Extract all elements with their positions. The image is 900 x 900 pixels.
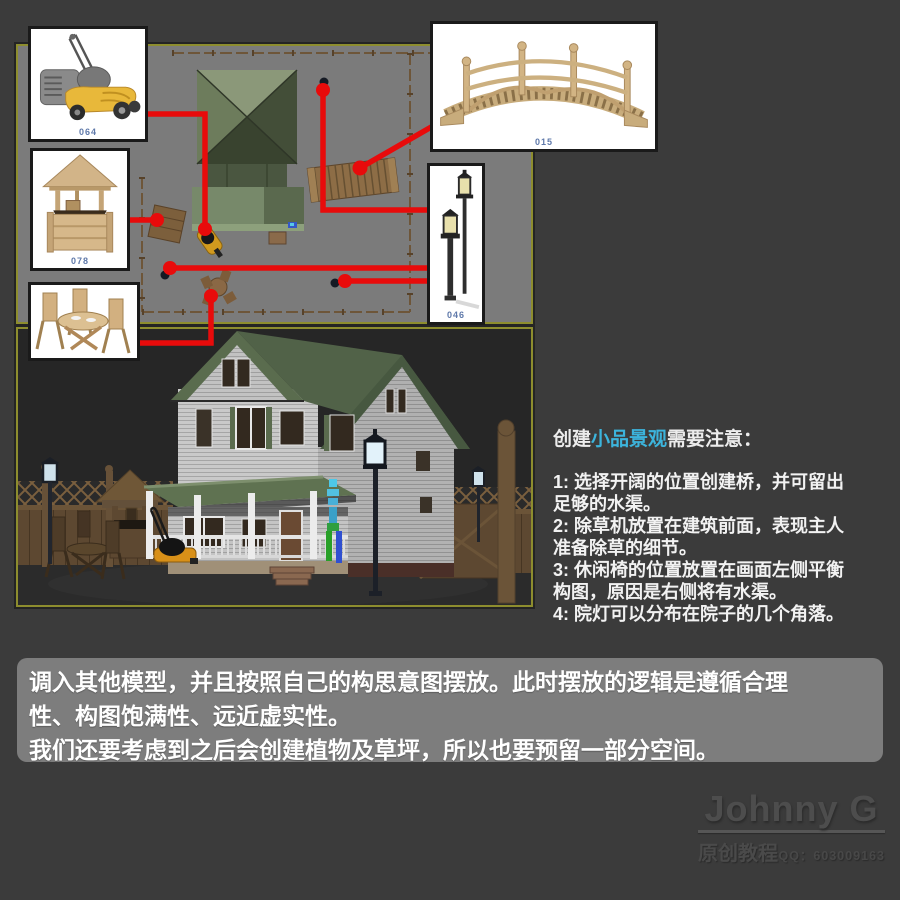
notes-heading-prefix: 创建 [553, 429, 591, 450]
thumbnail-label: 064 [31, 126, 145, 139]
summary-line-1: 调入其他模型，并且按照自己的构思意图摆放。此时摆放的逻辑是遵循合理性、构图饱满性… [29, 665, 821, 733]
house-roof-topview [192, 70, 304, 244]
viewport-render [16, 327, 533, 607]
brick-steps [270, 567, 314, 585]
table-set-topview [200, 269, 237, 307]
thumbnail-garden-lamps: 046 [427, 163, 485, 325]
wooden-bridge-icon [433, 24, 655, 136]
note-item-4: 4: 院灯可以分布在院子的几个角落。 [553, 603, 848, 625]
thumbnail-table-set [28, 282, 140, 361]
thumbnail-wishing-well: 078 [30, 148, 130, 271]
summary-panel: 调入其他模型，并且按照自己的构思意图摆放。此时摆放的逻辑是遵循合理性、构图饱满性… [17, 658, 883, 762]
note-item-2: 2: 除草机放置在建筑前面，表现主人准备除草的细节。 [553, 515, 848, 559]
note-item-1: 1: 选择开阔的位置创建桥，并可留出足够的水渠。 [553, 471, 848, 515]
watermark-qq: QQ：603009163 [778, 845, 885, 864]
thumbnail-label: 015 [433, 136, 655, 149]
thumbnail-wooden-bridge: 015 [430, 21, 658, 152]
notes-heading-suffix: 需要注意： [667, 429, 762, 450]
wishing-well-icon [33, 151, 127, 255]
watermark-name: Johnny G [698, 789, 885, 829]
thumbnail-label: 046 [430, 309, 482, 322]
notes-block: 创建小品景观需要注意： 1: 选择开阔的位置创建桥，并可留出足够的水渠。 2: … [553, 424, 853, 625]
notes-heading-highlight: 小品景观 [591, 429, 667, 450]
patio-table-set-icon [31, 285, 137, 358]
bridge-topview [307, 158, 398, 202]
thumbnail-lawn-mower: 064 [28, 26, 148, 142]
notes-heading: 创建小品景观需要注意： [553, 424, 853, 451]
summary-line-2: 我们还要考虑到之后会创建植物及草坪，所以也要预留一部分空间。 [29, 733, 821, 767]
watermark-tagline: 原创教程 [698, 837, 778, 866]
watermark: Johnny G 原创教程 QQ：603009163 [698, 789, 885, 866]
note-item-3: 3: 休闲椅的位置放置在画面左侧平衡构图，原因是右侧将有水渠。 [553, 559, 848, 603]
lawn-mower-icon [31, 29, 145, 126]
garden-lamps-icon [430, 166, 482, 309]
thumbnail-label: 078 [33, 255, 127, 268]
render-scene [18, 329, 531, 605]
well-topview [148, 205, 186, 243]
watermark-rule [698, 830, 885, 833]
